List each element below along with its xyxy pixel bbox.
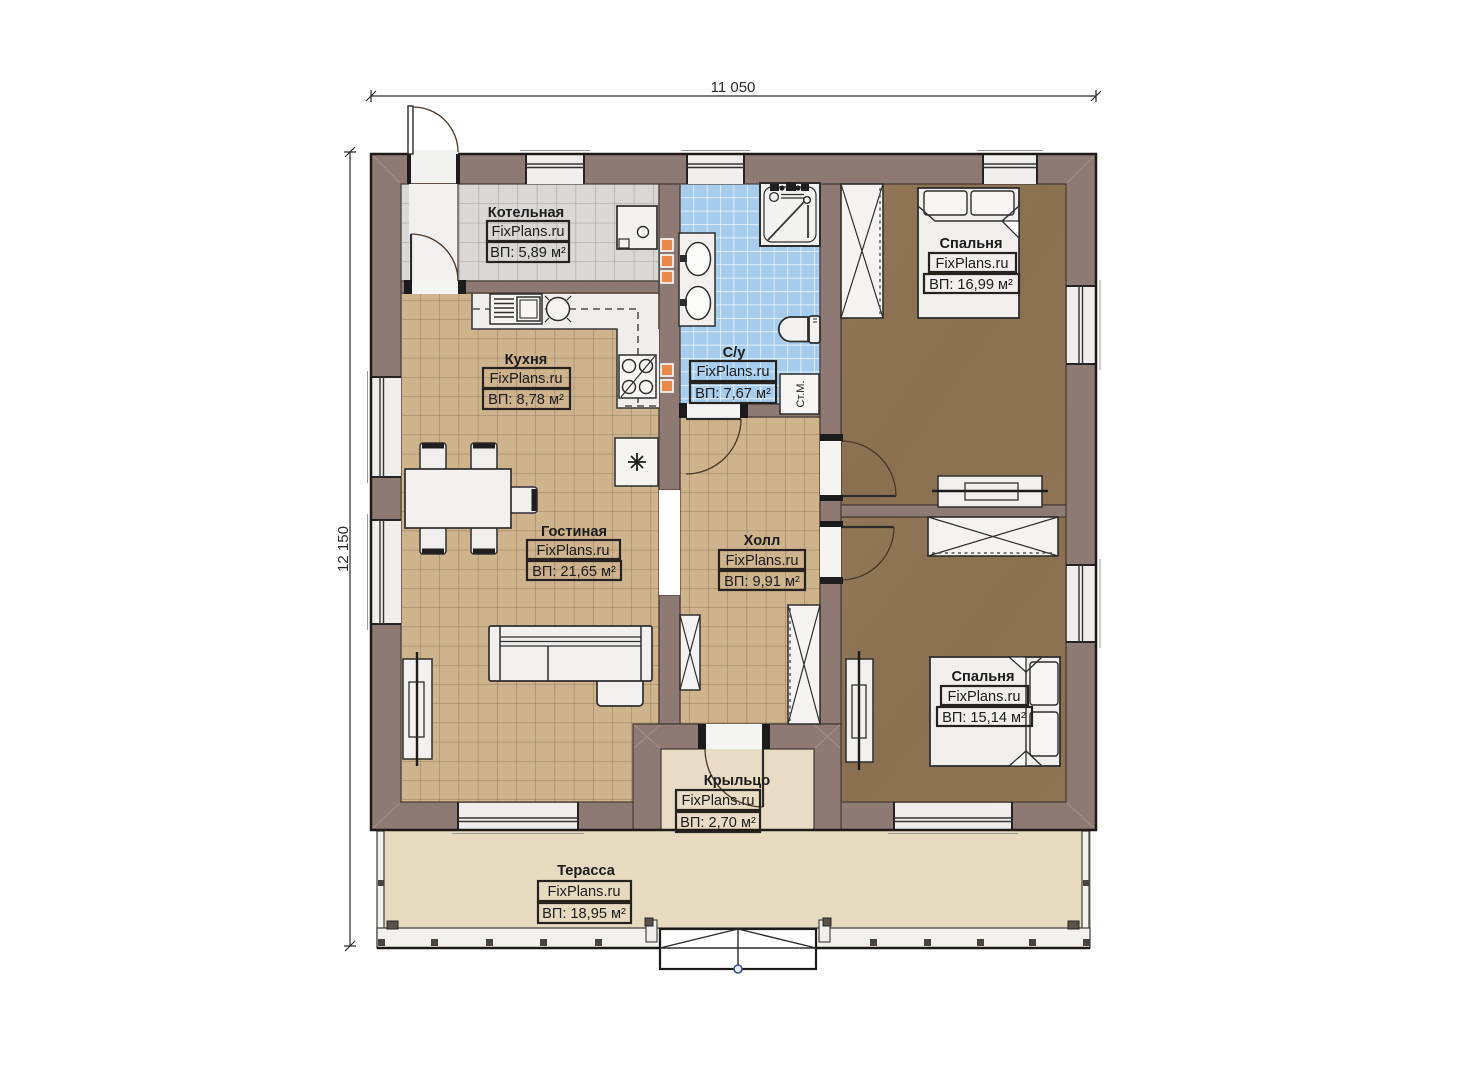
svg-text:ВП: 16,99 м²: ВП: 16,99 м² <box>929 277 1013 293</box>
svg-text:Спальня: Спальня <box>939 236 1002 252</box>
svg-text:12 150: 12 150 <box>335 526 352 572</box>
svg-text:Гостиная: Гостиная <box>541 524 607 540</box>
svg-text:FixPlans.ru: FixPlans.ru <box>697 364 770 380</box>
svg-text:Котельная: Котельная <box>488 205 564 221</box>
svg-text:Спальня: Спальня <box>951 669 1014 685</box>
svg-text:ВП: 5,89 м²: ВП: 5,89 м² <box>490 245 566 261</box>
svg-text:ВП: 21,65 м²: ВП: 21,65 м² <box>532 564 616 580</box>
svg-text:С/у: С/у <box>723 345 747 361</box>
svg-text:Кухня: Кухня <box>505 352 548 368</box>
svg-text:FixPlans.ru: FixPlans.ru <box>492 224 565 240</box>
svg-text:FixPlans.ru: FixPlans.ru <box>490 371 563 387</box>
svg-text:ВП: 2,70 м²: ВП: 2,70 м² <box>680 815 756 831</box>
svg-text:Крыльцо: Крыльцо <box>704 773 770 789</box>
svg-text:ВП: 18,95 м²: ВП: 18,95 м² <box>542 906 626 922</box>
svg-text:FixPlans.ru: FixPlans.ru <box>537 543 610 559</box>
svg-text:FixPlans.ru: FixPlans.ru <box>726 553 799 569</box>
svg-text:FixPlans.ru: FixPlans.ru <box>548 884 621 900</box>
svg-text:ВП: 15,14 м²: ВП: 15,14 м² <box>942 710 1026 726</box>
svg-text:FixPlans.ru: FixPlans.ru <box>936 256 1009 272</box>
svg-text:ВП: 9,91 м²: ВП: 9,91 м² <box>724 574 800 590</box>
svg-text:FixPlans.ru: FixPlans.ru <box>682 793 755 809</box>
svg-text:ВП: 7,67 м²: ВП: 7,67 м² <box>695 386 771 402</box>
svg-text:FixPlans.ru: FixPlans.ru <box>948 689 1021 705</box>
svg-text:Холл: Холл <box>744 533 781 549</box>
svg-text:11 050: 11 050 <box>711 79 756 96</box>
svg-text:Ст.М.: Ст.М. <box>795 380 807 407</box>
svg-text:Терасса: Терасса <box>557 863 616 879</box>
svg-text:ВП: 8,78 м²: ВП: 8,78 м² <box>488 392 564 408</box>
